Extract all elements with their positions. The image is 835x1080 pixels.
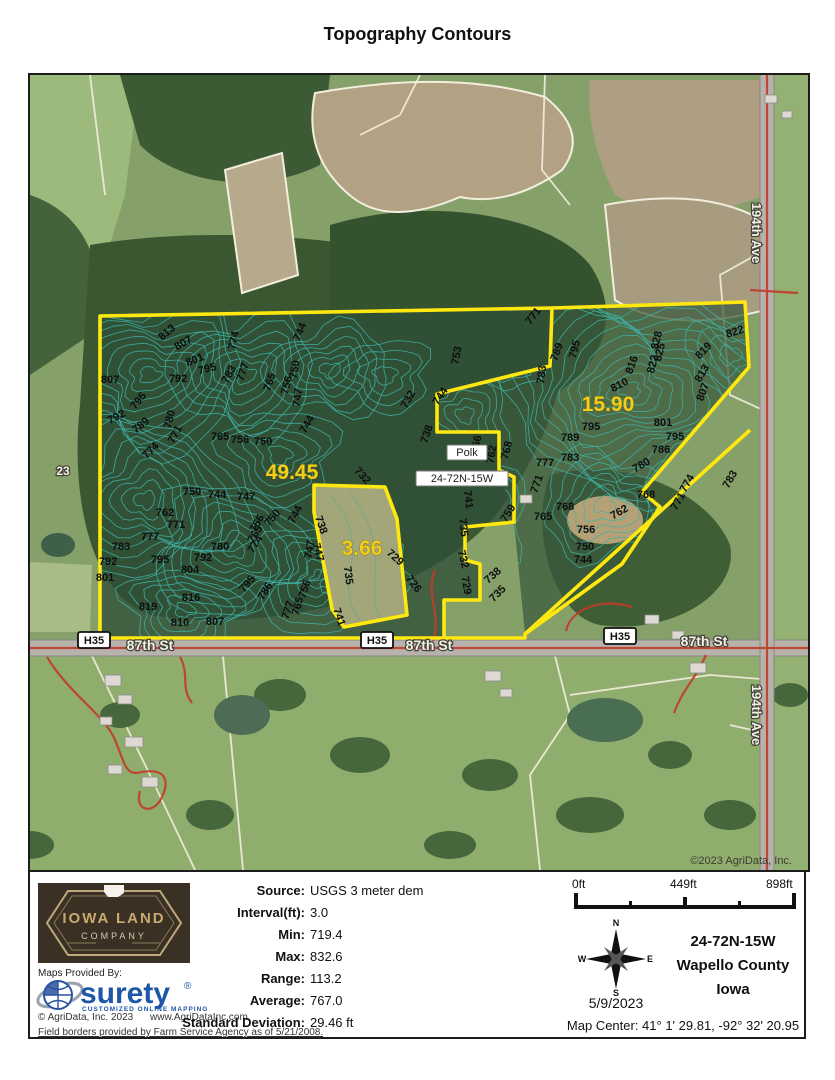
pond: [567, 698, 643, 742]
contour-elevation-label: 807: [206, 616, 224, 628]
township-range: 24-72N-15W: [640, 933, 826, 950]
county-name: Wapello County: [640, 957, 826, 974]
surety-logo: surety ® CUSTOMIZED ONLINE MAPPING: [36, 977, 266, 1011]
highway-badge-label: H35: [84, 635, 104, 647]
agridata-copyright: © AgriData, Inc. 2023: [38, 1012, 133, 1023]
contour-elevation-label: 795: [666, 431, 684, 443]
contour-elevation-label: 804: [181, 564, 200, 576]
contour-elevation-label: 783: [112, 541, 130, 553]
scale-bar: 0ft 449ft 898ft: [570, 877, 802, 917]
road-name-label: 87th St: [406, 637, 453, 653]
page-title: Topography Contours: [0, 24, 835, 45]
map-copyright: ©2023 AgriData, Inc.: [690, 855, 792, 867]
contour-elevation-label: 783: [561, 452, 579, 464]
contour-elevation-label: 765: [211, 431, 229, 443]
page: Topography Contours: [0, 0, 835, 1080]
road-name-label: 87th St: [681, 633, 728, 649]
contour-elevation-label: 780: [211, 541, 229, 553]
contour-elevation-label: 801: [654, 417, 672, 429]
contour-elevation-label: 744: [208, 489, 227, 501]
place-label: Polk: [456, 447, 478, 459]
road-name-label: 194th Ave: [749, 203, 764, 263]
place-label: 24-72N-15W: [431, 473, 494, 485]
highway-badge-label: H35: [367, 635, 387, 647]
contour-elevation-label: 771: [167, 519, 185, 531]
contour-elevation-label: 816: [182, 592, 200, 604]
road-name-label: 194th Ave: [749, 685, 764, 745]
logo-line1: IOWA LAND: [62, 910, 165, 927]
contour-elevation-label: 795: [582, 421, 600, 433]
scale-mid: 449ft: [670, 877, 697, 891]
contour-elevation-label: 750: [576, 541, 594, 553]
pond: [214, 695, 270, 735]
contour-elevation-label: 735: [456, 518, 470, 538]
topography-map: 8138078017957928077747837777657567507477…: [28, 73, 810, 872]
highway-badge-label: H35: [610, 631, 630, 643]
contour-elevation-label: 768: [556, 501, 574, 513]
contour-elevation-label: 756: [577, 524, 595, 536]
contour-elevation-label: 792: [194, 552, 212, 564]
contour-elevation-label: 750: [183, 486, 201, 498]
contour-elevation-label: 789: [561, 432, 579, 444]
contour-elevation-label: 777: [536, 457, 554, 469]
contour-elevation-label: 786: [652, 444, 670, 456]
state-name: Iowa: [640, 981, 826, 998]
parcel-acreage-label: 15.90: [582, 393, 635, 416]
contour-elevation-label: 792: [99, 556, 117, 568]
road-name-label: 87th St: [127, 637, 174, 653]
map-center-coordinates: Map Center: 41° 1' 29.81, -92° 32' 20.95: [558, 1018, 808, 1033]
contour-elevation-label: 777: [141, 531, 159, 543]
section-number-label: 23: [56, 464, 70, 478]
contour-elevation-label: 741: [461, 490, 475, 510]
iowa-state-icon: [104, 885, 124, 897]
scale-end: 898ft: [766, 877, 793, 891]
contour-elevation-label: 801: [96, 572, 114, 584]
contour-elevation-label: 744: [574, 554, 593, 566]
contour-elevation-label: 762: [156, 507, 174, 519]
contour-elevation-label: 756: [231, 434, 249, 446]
footer-panel: IOWA LAND COMPANY Maps Provided By: sure…: [28, 871, 806, 1039]
contour-elevation-label: 747: [291, 388, 305, 408]
registered-mark: ®: [184, 981, 192, 992]
compass-n: N: [613, 918, 620, 928]
aerial-map-canvas: 8138078017957928077747837777657567507477…: [30, 75, 808, 870]
parcel-acreage-label: 3.66: [342, 537, 383, 560]
parcel-acreage-label: 49.45: [266, 461, 319, 484]
contour-elevation-label: 807: [101, 374, 119, 386]
contour-elevation-label: 795: [151, 554, 169, 566]
contour-elevation-label: 750: [254, 436, 272, 448]
compass-w: W: [578, 954, 587, 964]
contour-elevation-label: 747: [237, 491, 255, 503]
contour-elevation-label: 735: [341, 566, 355, 586]
iowa-land-company-logo: IOWA LAND COMPANY: [38, 883, 190, 963]
pond: [41, 533, 75, 557]
contour-elevation-label: 768: [637, 489, 655, 501]
contour-elevation-label: 792: [169, 373, 187, 385]
contour-elevation-label: 783: [535, 365, 549, 385]
contour-elevation-label: 810: [171, 617, 189, 629]
contour-elevation-label: 765: [534, 511, 552, 523]
logo-line2: COMPANY: [81, 931, 147, 941]
contour-elevation-label: 819: [139, 601, 157, 613]
scale-start: 0ft: [572, 877, 585, 891]
